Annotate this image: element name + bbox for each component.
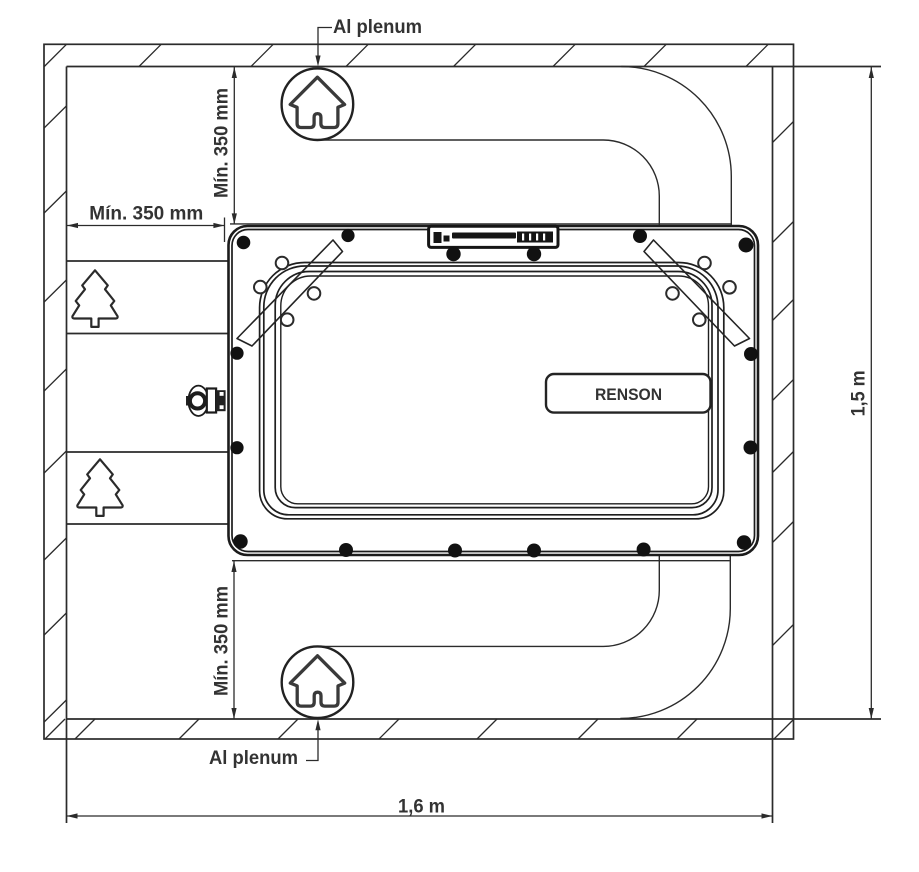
svg-text:1,5 m: 1,5 m: [848, 370, 869, 416]
svg-text:Al plenum: Al plenum: [333, 17, 422, 38]
svg-text:Al plenum: Al plenum: [209, 748, 298, 769]
svg-text:1,6 m: 1,6 m: [398, 797, 445, 818]
svg-text:Mín. 350 mm: Mín. 350 mm: [211, 88, 232, 198]
svg-text:Mín. 350 mm: Mín. 350 mm: [211, 586, 232, 696]
svg-text:Mín. 350 mm: Mín. 350 mm: [89, 203, 203, 224]
svg-text:RENSON: RENSON: [595, 385, 662, 404]
